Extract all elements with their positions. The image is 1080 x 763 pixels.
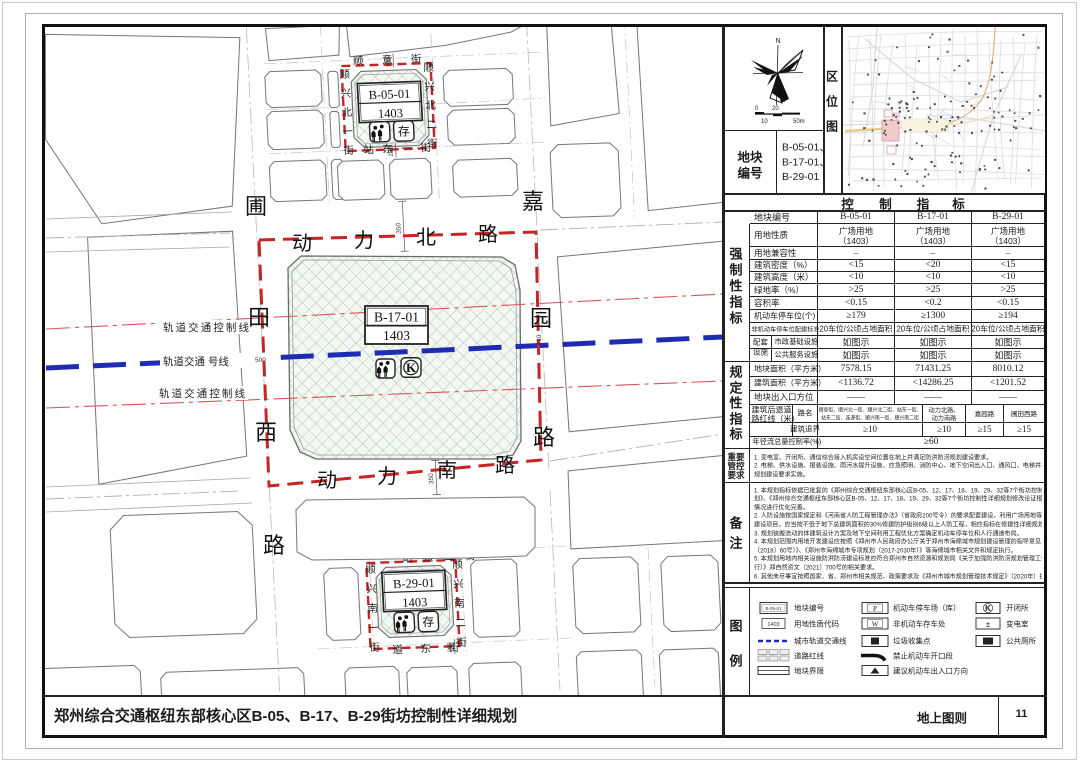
svg-text:兴: 兴 — [424, 81, 435, 93]
svg-text:兴: 兴 — [366, 583, 377, 595]
svg-text:轨道交通 号线: 轨道交通 号线 — [163, 355, 229, 368]
svg-text:东: 东 — [420, 642, 431, 655]
svg-text:二: 二 — [455, 617, 466, 629]
svg-text:兴: 兴 — [340, 88, 351, 100]
svg-text:顺: 顺 — [353, 55, 365, 67]
svg-text:南: 南 — [437, 459, 457, 482]
svg-text:W: W — [872, 620, 879, 628]
svg-text:站: 站 — [363, 143, 375, 156]
svg-text:力: 力 — [354, 229, 374, 252]
svg-text:顺: 顺 — [423, 62, 435, 74]
svg-text:一: 一 — [368, 622, 380, 634]
svg-text:街: 街 — [343, 144, 355, 157]
svg-text:1403: 1403 — [378, 106, 404, 121]
svg-text:西: 西 — [255, 420, 277, 445]
svg-text:街: 街 — [420, 141, 432, 154]
svg-text:0: 0 — [755, 106, 759, 112]
svg-text:1403: 1403 — [767, 622, 779, 628]
svg-text:南: 南 — [454, 597, 465, 610]
svg-text:B-05-01: B-05-01 — [368, 87, 410, 102]
svg-text:兴: 兴 — [453, 578, 464, 590]
svg-text:园: 园 — [530, 306, 552, 331]
svg-text:街: 街 — [369, 641, 381, 654]
svg-text:田: 田 — [248, 305, 270, 330]
svg-text:350: 350 — [395, 222, 403, 233]
svg-text:K: K — [406, 360, 417, 375]
svg-text:一: 一 — [401, 143, 413, 155]
svg-text:路: 路 — [263, 533, 285, 558]
svg-text:路: 路 — [533, 425, 555, 450]
svg-text:20: 20 — [772, 106, 779, 112]
svg-text:280: 280 — [389, 146, 396, 157]
svg-text:10: 10 — [761, 119, 768, 125]
svg-text:顺: 顺 — [365, 564, 377, 576]
svg-text:1403: 1403 — [402, 595, 428, 610]
svg-text:路: 路 — [495, 454, 515, 477]
svg-text:路: 路 — [478, 223, 498, 246]
svg-text:存: 存 — [397, 124, 410, 138]
svg-text:顺: 顺 — [452, 559, 464, 571]
svg-text:二: 二 — [426, 119, 437, 131]
svg-text:存: 存 — [422, 615, 435, 629]
svg-text:B-17-01: B-17-01 — [374, 310, 419, 325]
svg-text:北: 北 — [416, 226, 436, 249]
svg-text:410: 410 — [536, 334, 543, 345]
svg-text:北: 北 — [341, 107, 353, 119]
svg-text:街: 街 — [411, 52, 423, 65]
svg-text:B-05-01: B-05-01 — [765, 606, 782, 611]
svg-text:K: K — [985, 604, 991, 613]
svg-text:260: 260 — [447, 642, 454, 653]
svg-text:P: P — [873, 605, 877, 613]
svg-text:力: 力 — [377, 465, 397, 488]
svg-text:B-29-01: B-29-01 — [393, 576, 435, 591]
svg-text:±: ± — [986, 620, 991, 629]
svg-text:180: 180 — [386, 57, 393, 68]
svg-text:350: 350 — [428, 473, 436, 484]
svg-text:北: 北 — [425, 100, 437, 112]
svg-text:一: 一 — [342, 126, 354, 138]
svg-text:顺: 顺 — [339, 69, 351, 81]
svg-text:动: 动 — [317, 469, 337, 492]
svg-text:南: 南 — [367, 602, 378, 615]
svg-text:N: N — [775, 38, 780, 45]
svg-text:道: 道 — [392, 643, 404, 656]
svg-text:嘉: 嘉 — [522, 189, 544, 214]
svg-text:50m: 50m — [793, 119, 805, 125]
svg-text:1403: 1403 — [383, 328, 410, 343]
svg-text:圃: 圃 — [245, 194, 267, 219]
svg-text:动: 动 — [292, 232, 312, 255]
